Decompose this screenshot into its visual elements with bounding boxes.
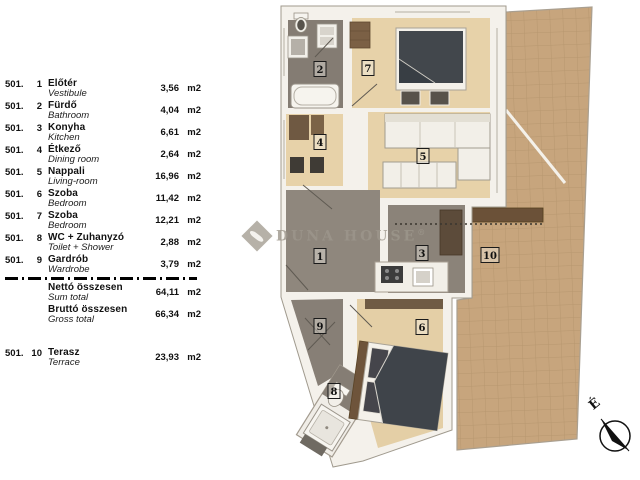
- room-area: 3,79: [147, 255, 179, 274]
- legend-row-livingroom: 501.5 NappaliLiving-room 16,96 m2: [5, 167, 201, 187]
- room-name-en: Terrace: [48, 358, 147, 368]
- area-unit: m2: [179, 101, 201, 120]
- area-unit: m2: [179, 167, 201, 186]
- room-name-en: Living-room: [48, 177, 147, 187]
- room-label-1: 1: [314, 249, 326, 264]
- room-name-en: Wardrobe: [48, 265, 147, 275]
- room-name-en: Bathroom: [48, 111, 147, 121]
- room-area: 16,96: [147, 167, 179, 186]
- total-name-en: Sum total: [48, 293, 147, 303]
- legend-row-net-total: Nettó összesenSum total 64,11 m2: [5, 283, 201, 303]
- area-unit: m2: [179, 211, 201, 230]
- room-code: 501.3: [5, 123, 42, 134]
- total-name-en: Gross total: [48, 315, 147, 325]
- area-unit: m2: [179, 189, 201, 208]
- room-code: 501.5: [5, 167, 42, 178]
- room-area: 3,56: [147, 79, 179, 98]
- area-unit: m2: [179, 255, 201, 274]
- bed: [349, 341, 448, 431]
- wardrobe-cabinet: [350, 22, 370, 48]
- room-area: 2,64: [147, 145, 179, 164]
- svg-text:4: 4: [317, 138, 324, 149]
- stove: [381, 266, 403, 283]
- room-label-2: 2: [314, 62, 326, 77]
- room-area: 6,61: [147, 123, 179, 142]
- legend-row-dining: 501.4 ÉtkezőDining room 2,64 m2: [5, 145, 201, 165]
- total-area: 64,11: [147, 283, 179, 302]
- legend-row-bathroom: 501.2 FürdőBathroom 4,04 m2: [5, 101, 201, 121]
- svg-text:2: 2: [317, 65, 324, 76]
- floorplan-drawing: 1 2 3 4 5 6 7: [263, 3, 640, 477]
- legend-row-gross-total: Bruttó összesenGross total 66,34 m2: [5, 305, 201, 325]
- area-unit: m2: [179, 348, 201, 367]
- area-unit: m2: [179, 233, 201, 252]
- room-code: 501.10: [5, 348, 42, 359]
- room-code: 501.9: [5, 255, 42, 266]
- room-code: 501.2: [5, 101, 42, 112]
- legend-row-wc: 501.8 WC + ZuhanyzóToilet + Shower 2,88 …: [5, 233, 201, 253]
- room-name-en: Toilet + Shower: [48, 243, 147, 253]
- room-label-4: 4: [314, 135, 326, 150]
- legend-row-vestibule: 501.1 ElőtérVestibule 3,56 m2: [5, 79, 201, 99]
- legend-divider: [5, 277, 197, 280]
- svg-text:8: 8: [331, 387, 338, 398]
- room-floor-hall: [286, 190, 380, 292]
- area-unit: m2: [179, 283, 201, 302]
- room-code: 501.8: [5, 233, 42, 244]
- room-code: 501.4: [5, 145, 42, 156]
- bedroom-bottom-wardrobe: [365, 299, 443, 309]
- legend-row-bedroom2: 501.7 SzobaBedroom 12,21 m2: [5, 211, 201, 231]
- legend-row-bedroom1: 501.6 SzobaBedroom 11,42 m2: [5, 189, 201, 209]
- svg-text:1: 1: [317, 252, 324, 263]
- room-area: 4,04: [147, 101, 179, 120]
- svg-text:3: 3: [419, 249, 426, 260]
- room-legend: 501.1 ElőtérVestibule 3,56 m2 501.2 Fürd…: [5, 79, 201, 370]
- total-area: 66,34: [147, 305, 179, 324]
- north-label: É: [585, 395, 603, 414]
- room-label-10: 10: [481, 248, 499, 263]
- legend-row-wardrobe: 501.9 GardróbWardrobe 3,79 m2: [5, 255, 201, 275]
- compass-north-arrow: É: [585, 395, 630, 451]
- room-name-en: Bedroom: [48, 221, 147, 231]
- room-label-5: 5: [417, 149, 429, 164]
- floorplan-page: 501.1 ElőtérVestibule 3,56 m2 501.2 Fürd…: [0, 0, 640, 480]
- room-area: 2,88: [147, 233, 179, 252]
- room-code: 501.1: [5, 79, 42, 90]
- room-code: 501.7: [5, 211, 42, 222]
- room-code: 501.6: [5, 189, 42, 200]
- room-label-3: 3: [416, 246, 428, 261]
- room-name-en: Dining room: [48, 155, 147, 165]
- svg-text:5: 5: [420, 152, 427, 163]
- legend-row-kitchen: 501.3 KonyhaKitchen 6,61 m2: [5, 123, 201, 143]
- room-area: 12,21: [147, 211, 179, 230]
- room-label-6: 6: [416, 320, 428, 335]
- area-unit: m2: [179, 123, 201, 142]
- room-label-9: 9: [314, 319, 326, 334]
- nightstand: [401, 91, 420, 105]
- room-area: 23,93: [147, 348, 179, 367]
- area-unit: m2: [179, 79, 201, 98]
- area-unit: m2: [179, 145, 201, 164]
- legend-row-terrace: 501.10 TeraszTerrace 23,93 m2: [5, 348, 201, 368]
- room-label-8: 8: [328, 384, 340, 399]
- room-area: 11,42: [147, 189, 179, 208]
- area-unit: m2: [179, 305, 201, 324]
- svg-text:9: 9: [317, 322, 324, 333]
- svg-text:7: 7: [365, 64, 372, 75]
- room-name-en: Vestibule: [48, 89, 147, 99]
- nightstand: [430, 91, 449, 105]
- room-label-7: 7: [362, 61, 374, 76]
- svg-text:10: 10: [483, 251, 497, 262]
- room-name-en: Kitchen: [48, 133, 147, 143]
- room-name-en: Bedroom: [48, 199, 147, 209]
- svg-text:6: 6: [419, 323, 426, 334]
- terrace-bench: [470, 208, 543, 222]
